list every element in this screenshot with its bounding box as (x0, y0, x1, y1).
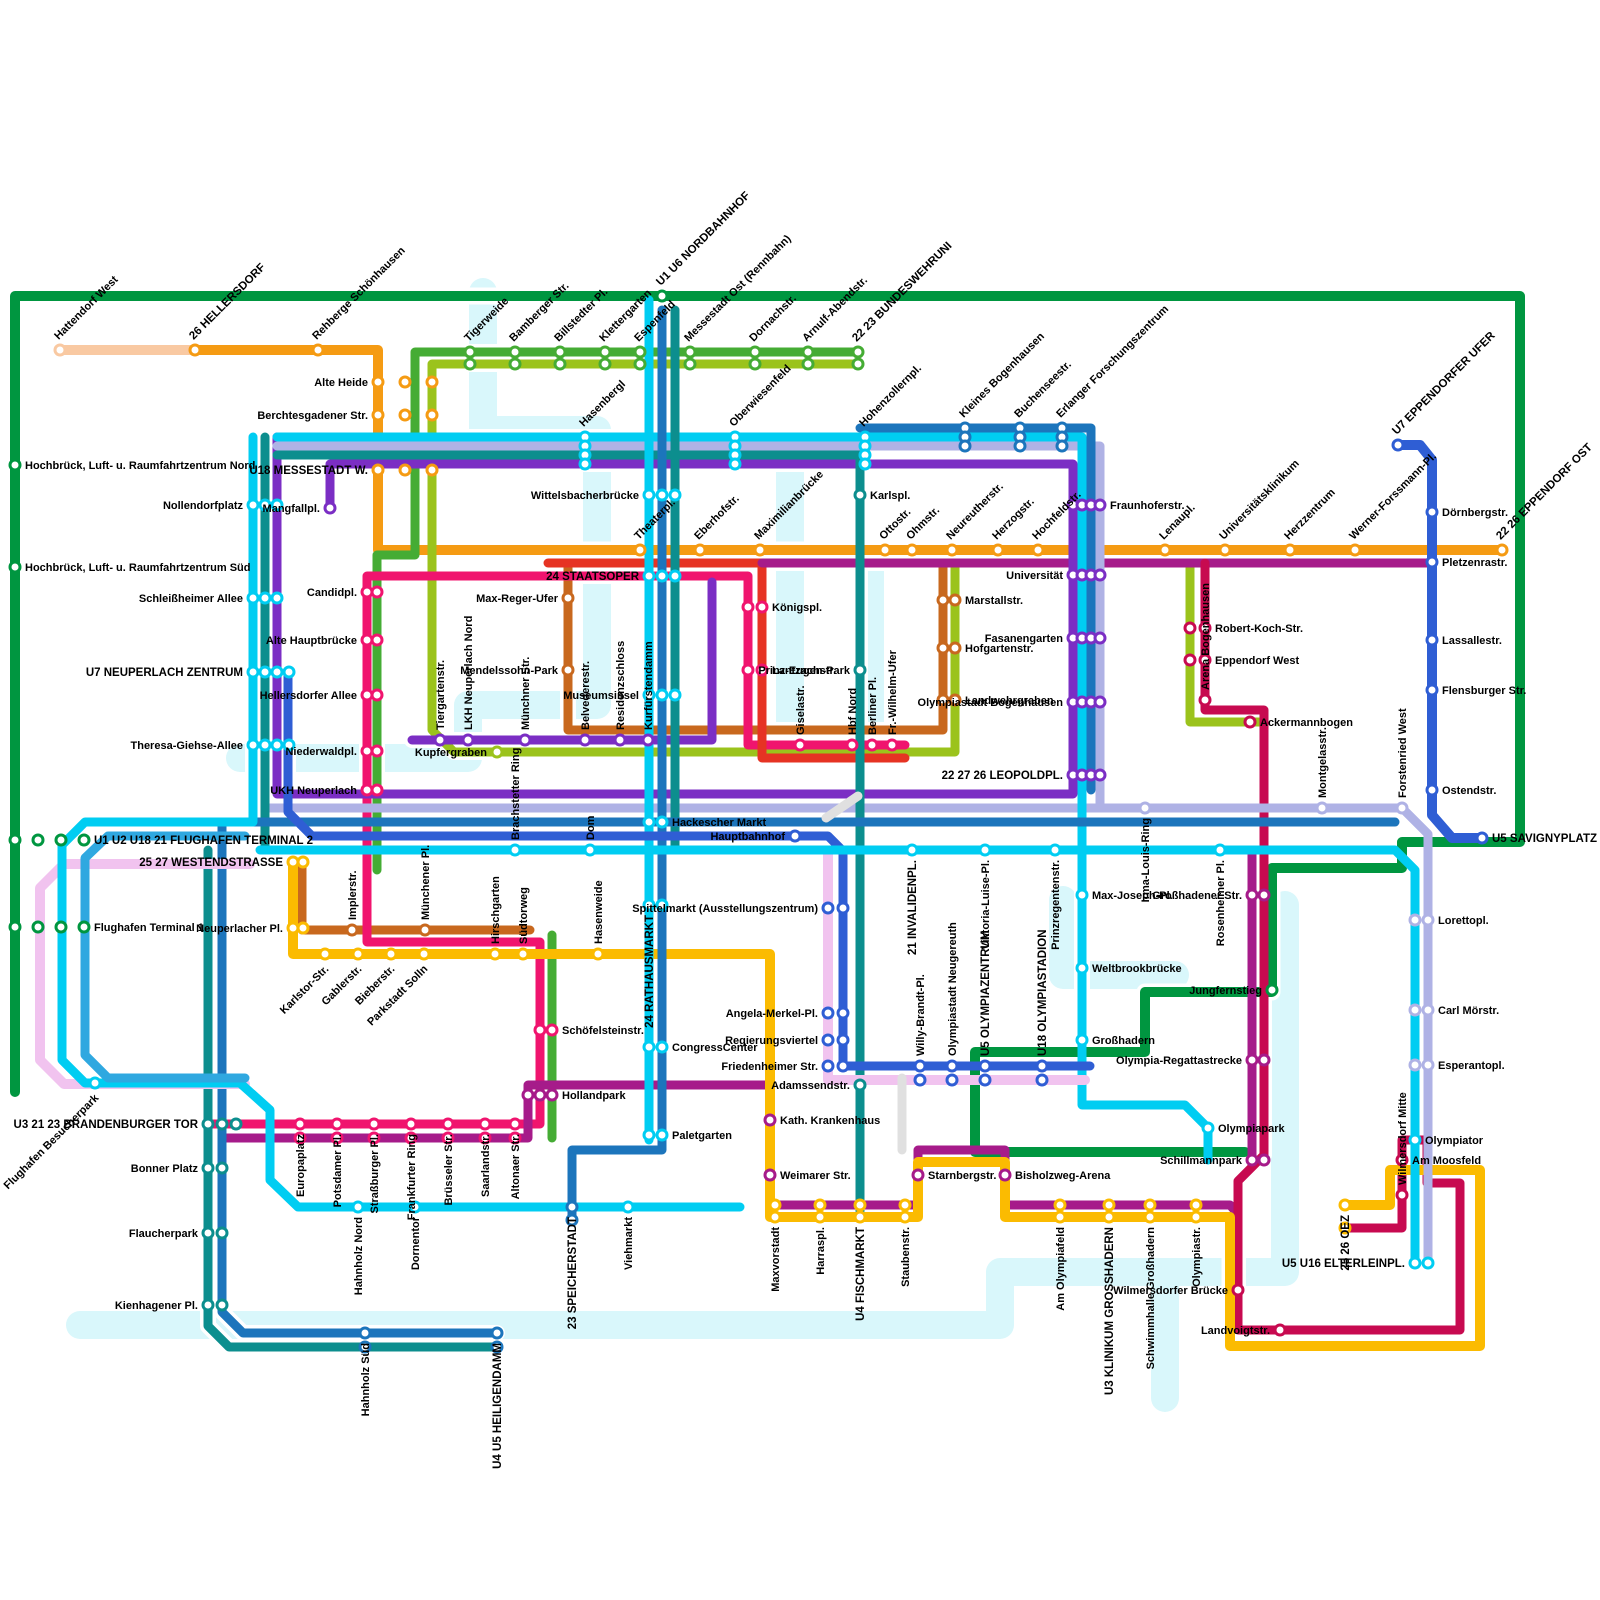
station-label: Kath. Krankenhaus (780, 1115, 880, 1127)
station-dot[interactable] (435, 735, 445, 745)
station-label: Landvoigtstr. (1201, 1325, 1270, 1337)
station-dot[interactable] (1397, 803, 1407, 813)
station-dot[interactable] (1055, 1212, 1065, 1222)
station-dot[interactable] (765, 1115, 775, 1125)
station-dot[interactable] (347, 925, 357, 935)
station-dot[interactable] (644, 490, 654, 500)
station-label: Paletgarten (672, 1130, 732, 1142)
station-dot[interactable] (1275, 1325, 1285, 1335)
station-label: Viehmarkt (623, 1217, 635, 1270)
station-dot[interactable] (248, 500, 258, 510)
station-dot[interactable] (593, 949, 603, 959)
station-label: Hattendorf West (52, 274, 121, 343)
station-dot[interactable] (427, 377, 437, 387)
station-dot[interactable] (838, 1035, 848, 1045)
station-label: Hochbrück, Luft- u. Raumfahrtzentrum Nor… (25, 460, 255, 472)
station-label: Angela-Merkel-Pl. (726, 1008, 818, 1020)
station-dot[interactable] (360, 1328, 370, 1338)
station-dot[interactable] (1095, 570, 1105, 580)
station-label: Hahnholz Nord (353, 1217, 365, 1295)
station-dot[interactable] (480, 1119, 490, 1129)
station-label: Brachstetter Ring (510, 748, 522, 840)
station-dot[interactable] (900, 1200, 910, 1210)
station-dot[interactable] (960, 441, 970, 451)
station-label: Maxvorstadt (770, 1227, 782, 1292)
station-dot[interactable] (853, 359, 863, 369)
station-dot[interactable] (386, 949, 396, 959)
station-label: Rosenheimer Pl. (1215, 860, 1227, 946)
station-label: Viktoria-Luise-Pl. (980, 860, 992, 950)
station-dot[interactable] (823, 1035, 833, 1045)
station-dot[interactable] (1185, 623, 1195, 633)
station-dot[interactable] (730, 459, 740, 469)
station-dot[interactable] (765, 1170, 775, 1180)
station-label: Dornentor (410, 1216, 422, 1270)
station-dot[interactable] (490, 949, 500, 959)
station-dot[interactable] (248, 740, 258, 750)
station-dot[interactable] (585, 845, 595, 855)
station-label-interchange: U1 U6 NORDBAHNHOF (654, 190, 752, 288)
station-label: Fraunhoferstr. (1110, 500, 1185, 512)
station-dot[interactable] (657, 690, 667, 700)
station-dot[interactable] (657, 490, 667, 500)
station-label: Starnbergstr. (928, 1170, 996, 1182)
station-dot[interactable] (1140, 803, 1150, 813)
station-dot[interactable] (880, 545, 890, 555)
station-label: Herzogstr. (990, 496, 1037, 543)
station-dot[interactable] (56, 835, 66, 845)
station-dot[interactable] (90, 1078, 100, 1088)
station-dot[interactable] (635, 359, 645, 369)
station-dot[interactable] (535, 1090, 545, 1100)
station-dot[interactable] (855, 1200, 865, 1210)
station-dot[interactable] (373, 465, 383, 475)
station-dot[interactable] (600, 347, 610, 357)
station-dot[interactable] (56, 922, 66, 932)
station-dot[interactable] (838, 1061, 848, 1071)
station-dot[interactable] (1427, 557, 1437, 567)
station-label: Weltbrookbrücke (1092, 963, 1182, 975)
station-dot[interactable] (1477, 833, 1487, 843)
station-label-interchange: U7 NEUPERLACH ZENTRUM (86, 667, 243, 679)
station-dot[interactable] (750, 359, 760, 369)
station-dot[interactable] (823, 1061, 833, 1071)
station-dot[interactable] (231, 1119, 241, 1129)
station-label: Mangfallpl. (263, 503, 320, 515)
station-label: Karlstor-Str. (278, 963, 331, 1016)
station-dot[interactable] (900, 1212, 910, 1222)
station-dot[interactable] (295, 1119, 305, 1129)
station-dot[interactable] (33, 835, 43, 845)
station-dot[interactable] (1393, 440, 1403, 450)
transit-map-page: Hattendorf West26 HELLERSDORFRehberge Sc… (0, 0, 1600, 1600)
station-dot[interactable] (1245, 717, 1255, 727)
station-dot[interactable] (332, 1119, 342, 1129)
station-dot[interactable] (260, 667, 270, 677)
station-dot[interactable] (1317, 803, 1327, 813)
station-dot[interactable] (55, 345, 65, 355)
station-dot[interactable] (1095, 500, 1105, 510)
station-dot[interactable] (1000, 1170, 1010, 1180)
station-dot[interactable] (33, 922, 43, 932)
station-dot[interactable] (419, 949, 429, 959)
station-dot[interactable] (523, 1090, 533, 1100)
station-dot[interactable] (353, 949, 363, 959)
station-label: Fasanengarten (985, 633, 1064, 645)
station-dot[interactable] (635, 347, 645, 357)
station-dot[interactable] (563, 665, 573, 675)
station-dot[interactable] (272, 740, 282, 750)
station-dot[interactable] (938, 595, 948, 605)
station-dot[interactable] (463, 735, 473, 745)
station-dot[interactable] (867, 740, 877, 750)
station-dot[interactable] (1427, 507, 1437, 517)
station-dot[interactable] (823, 903, 833, 913)
station-dot[interactable] (248, 593, 258, 603)
station-dot[interactable] (1497, 545, 1507, 555)
station-dot[interactable] (644, 1130, 654, 1140)
station-dot[interactable] (750, 347, 760, 357)
station-dot[interactable] (838, 1008, 848, 1018)
station-label: Pletzenrastr. (1442, 557, 1507, 569)
station-dot[interactable] (887, 740, 897, 750)
station-dot[interactable] (400, 410, 410, 420)
station-dot[interactable] (547, 1025, 557, 1035)
station-label: Potsdamer Pl. (332, 1134, 344, 1207)
station-dot[interactable] (10, 562, 20, 572)
station-dot[interactable] (427, 410, 437, 420)
station-dot[interactable] (1057, 441, 1067, 451)
station-dot[interactable] (372, 587, 382, 597)
station-dot[interactable] (520, 735, 530, 745)
station-dot[interactable] (10, 835, 20, 845)
station-dot[interactable] (260, 740, 270, 750)
station-dot[interactable] (1247, 1055, 1257, 1065)
station-dot[interactable] (555, 359, 565, 369)
station-dot[interactable] (803, 347, 813, 357)
station-dot[interactable] (913, 1170, 923, 1180)
station-dot[interactable] (635, 545, 645, 555)
station-dot[interactable] (492, 747, 502, 757)
station-dot[interactable] (1104, 1212, 1114, 1222)
station-dot[interactable] (217, 1300, 227, 1310)
station-dot[interactable] (1077, 890, 1087, 900)
station-dot[interactable] (1410, 1258, 1420, 1268)
station-dot[interactable] (950, 643, 960, 653)
station-dot[interactable] (492, 1328, 502, 1338)
station-dot[interactable] (1145, 1200, 1155, 1210)
station-dot[interactable] (217, 1163, 227, 1173)
station-dot[interactable] (1423, 1258, 1433, 1268)
station-label: Herzzentrum (1282, 486, 1338, 542)
station-dot[interactable] (644, 1042, 654, 1052)
station-label-interchange: U18 MESSESTADT W. (249, 465, 368, 477)
station-dot[interactable] (535, 1025, 545, 1035)
station-dot[interactable] (855, 665, 865, 675)
station-dot[interactable] (938, 643, 948, 653)
station-dot[interactable] (980, 1061, 990, 1071)
station-dot[interactable] (838, 903, 848, 913)
station-dot[interactable] (815, 1200, 825, 1210)
station-dot[interactable] (623, 1202, 633, 1212)
station-dot[interactable] (1200, 695, 1210, 705)
station-label: Alte Heide (314, 377, 368, 389)
station-dot[interactable] (1397, 1190, 1407, 1200)
station-label: Neuperlacher Pl. (196, 923, 283, 935)
station-dot[interactable] (790, 831, 800, 841)
station-dot[interactable] (443, 1119, 453, 1129)
station-dot[interactable] (743, 665, 753, 675)
station-dot[interactable] (795, 740, 805, 750)
station-dot[interactable] (643, 735, 653, 745)
station-dot[interactable] (298, 923, 308, 933)
station-dot[interactable] (1033, 545, 1043, 555)
station-dot[interactable] (1350, 545, 1360, 555)
station-dot[interactable] (1104, 1200, 1114, 1210)
station-label: Forstenried West (1397, 708, 1409, 798)
station-dot[interactable] (427, 465, 437, 475)
station-dot[interactable] (1285, 545, 1295, 555)
station-dot[interactable] (260, 593, 270, 603)
station-label: Frankfurter Ring (406, 1134, 418, 1220)
station-dot[interactable] (915, 1075, 925, 1085)
station-dot[interactable] (657, 571, 667, 581)
station-dot[interactable] (1410, 1005, 1420, 1015)
station-dot[interactable] (803, 359, 813, 369)
station-label: Südtorweg (518, 887, 530, 944)
station-dot[interactable] (203, 1119, 213, 1129)
station-label-interchange: U5 U16 ELTERLEINPL. (1282, 1258, 1405, 1270)
station-dot[interactable] (1259, 890, 1269, 900)
station-label: Olympiastadt Bogenhausen (918, 697, 1064, 709)
station-dot[interactable] (1015, 441, 1025, 451)
station-dot[interactable] (372, 690, 382, 700)
station-dot[interactable] (644, 571, 654, 581)
station-label: Jungfernstieg (1189, 985, 1262, 997)
station-dot[interactable] (373, 410, 383, 420)
station-dot[interactable] (670, 490, 680, 500)
station-dot[interactable] (1259, 1155, 1269, 1165)
station-dot[interactable] (400, 377, 410, 387)
station-label-interchange: 22 26 EPPENDORF OST (1494, 442, 1595, 543)
station-dot[interactable] (743, 602, 753, 612)
station-dot[interactable] (1410, 915, 1420, 925)
station-dot[interactable] (1427, 635, 1437, 645)
station-dot[interactable] (1427, 785, 1437, 795)
station-dot[interactable] (1095, 633, 1105, 643)
station-label: Regierungsviertel (725, 1035, 818, 1047)
station-dot[interactable] (1410, 1060, 1420, 1070)
station-dot[interactable] (770, 1200, 780, 1210)
station-label: Hackescher Markt (672, 817, 767, 829)
station-dot[interactable] (1233, 1285, 1243, 1295)
station-dot[interactable] (10, 922, 20, 932)
station-dot[interactable] (1077, 963, 1087, 973)
station-label: Am Moosfeld (1412, 1155, 1481, 1167)
station-dot[interactable] (1423, 1005, 1433, 1015)
station-dot[interactable] (757, 602, 767, 612)
station-dot[interactable] (320, 949, 330, 959)
station-label: Parkstadt Solln (365, 963, 430, 1028)
station-dot[interactable] (657, 291, 667, 301)
station-dot[interactable] (563, 593, 573, 603)
station-dot[interactable] (847, 740, 857, 750)
station-dot[interactable] (855, 1080, 865, 1090)
station-label: Ostendstr. (1442, 785, 1496, 797)
station-dot[interactable] (1427, 685, 1437, 695)
station-dot[interactable] (372, 746, 382, 756)
station-label: Carl Mörstr. (1438, 1005, 1499, 1017)
station-dot[interactable] (1259, 1055, 1269, 1065)
station-label: Europaplatz (295, 1134, 307, 1197)
station-dot[interactable] (10, 460, 20, 470)
station-dot[interactable] (325, 503, 335, 513)
station-dot[interactable] (79, 835, 89, 845)
station-label: Flaucherpark (129, 1228, 199, 1240)
station-dot[interactable] (1185, 655, 1195, 665)
station-label: Olympiastr. (1191, 1227, 1203, 1287)
station-dot[interactable] (950, 595, 960, 605)
station-dot[interactable] (217, 1228, 227, 1238)
station-dot[interactable] (1203, 1123, 1213, 1133)
station-label: Olympia-Regattastrecke (1116, 1055, 1242, 1067)
station-dot[interactable] (907, 545, 917, 555)
station-dot[interactable] (993, 545, 1003, 555)
station-dot[interactable] (580, 735, 590, 745)
station-dot[interactable] (615, 735, 625, 745)
station-dot[interactable] (420, 925, 430, 935)
station-dot[interactable] (406, 1119, 416, 1129)
station-dot[interactable] (1077, 1035, 1087, 1045)
station-dot[interactable] (248, 667, 258, 677)
station-dot[interactable] (547, 1090, 557, 1100)
station-dot[interactable] (685, 359, 695, 369)
station-label: Marstallstr. (965, 595, 1023, 607)
station-dot[interactable] (510, 845, 520, 855)
station-dot[interactable] (855, 1212, 865, 1222)
station-dot[interactable] (203, 1163, 213, 1173)
station-dot[interactable] (1410, 1135, 1420, 1145)
station-dot[interactable] (1247, 890, 1257, 900)
station-dot[interactable] (947, 1075, 957, 1085)
station-dot[interactable] (907, 845, 917, 855)
station-dot[interactable] (1095, 697, 1105, 707)
station-dot[interactable] (670, 571, 680, 581)
station-label: Olympiapark (1218, 1123, 1286, 1135)
station-dot[interactable] (190, 345, 200, 355)
station-label: Weimarer Str. (780, 1170, 851, 1182)
station-dot[interactable] (980, 1075, 990, 1085)
station-dot[interactable] (1215, 845, 1225, 855)
station-label: Altonaer Str. (510, 1134, 522, 1199)
station-dot[interactable] (1191, 1200, 1201, 1210)
station-dot[interactable] (657, 1042, 667, 1052)
station-label: Montgelasstr. (1317, 727, 1329, 798)
station-dot[interactable] (1220, 545, 1230, 555)
station-label: Niederwaldpl. (285, 746, 357, 758)
station-dot[interactable] (369, 1119, 379, 1129)
station-dot[interactable] (518, 949, 528, 959)
station-dot[interactable] (372, 635, 382, 645)
station-dot[interactable] (580, 459, 590, 469)
station-dot[interactable] (657, 1130, 667, 1140)
station-dot[interactable] (860, 459, 870, 469)
station-dot[interactable] (284, 667, 294, 677)
station-dot[interactable] (1423, 1060, 1433, 1070)
station-dot[interactable] (695, 545, 705, 555)
station-dot[interactable] (1095, 770, 1105, 780)
station-dot[interactable] (465, 359, 475, 369)
station-dot[interactable] (203, 1228, 213, 1238)
station-dot[interactable] (815, 1212, 825, 1222)
station-dot[interactable] (644, 817, 654, 827)
station-dot[interactable] (373, 377, 383, 387)
station-dot[interactable] (600, 359, 610, 369)
station-dot[interactable] (853, 347, 863, 357)
station-dot[interactable] (313, 345, 323, 355)
station-dot[interactable] (510, 1119, 520, 1129)
station-dot[interactable] (272, 667, 282, 677)
station-dot[interactable] (770, 1212, 780, 1222)
station-dot[interactable] (372, 785, 382, 795)
station-dot[interactable] (657, 817, 667, 827)
station-dot[interactable] (400, 465, 410, 475)
station-label: Alte Hauptbrücke (266, 635, 357, 647)
station-dot[interactable] (915, 1061, 925, 1071)
station-dot[interactable] (670, 690, 680, 700)
station-dot[interactable] (555, 347, 565, 357)
station-label: Flensburger Str. (1442, 685, 1526, 697)
station-dot[interactable] (1340, 1200, 1350, 1210)
station-dot[interactable] (567, 1202, 577, 1212)
station-dot[interactable] (510, 359, 520, 369)
station-dot[interactable] (947, 1061, 957, 1071)
station-dot[interactable] (510, 347, 520, 357)
station-dot[interactable] (685, 347, 695, 357)
station-dot[interactable] (1037, 1075, 1047, 1085)
station-dot[interactable] (298, 857, 308, 867)
station-dot[interactable] (217, 1119, 227, 1129)
station-dot[interactable] (1160, 545, 1170, 555)
station-label-interchange: U3 21 23 BRANDENBURGER TOR (14, 1119, 199, 1131)
station-dot[interactable] (1191, 1212, 1201, 1222)
station-dot[interactable] (947, 545, 957, 555)
station-dot[interactable] (465, 347, 475, 357)
station-dot[interactable] (855, 490, 865, 500)
station-label: Dörnbergstr. (1442, 507, 1508, 519)
station-label: Münchener Pl. (420, 845, 432, 920)
station-dot[interactable] (203, 1300, 213, 1310)
station-dot[interactable] (823, 1008, 833, 1018)
station-dot[interactable] (1267, 985, 1277, 995)
station-label: Willy-Brandt-Pl. (915, 974, 927, 1056)
station-label: Hellersdorfer Allee (260, 690, 357, 702)
station-dot[interactable] (980, 845, 990, 855)
station-dot[interactable] (1055, 1200, 1065, 1210)
station-dot[interactable] (1037, 1061, 1047, 1071)
station-dot[interactable] (1145, 1212, 1155, 1222)
station-dot[interactable] (79, 922, 89, 932)
station-dot[interactable] (272, 593, 282, 603)
station-dot[interactable] (1423, 915, 1433, 925)
station-label: Spittelmarkt (Ausstellungszentrum) (632, 903, 818, 915)
station-dot[interactable] (1247, 1155, 1257, 1165)
station-label: Hochbrück, Luft- u. Raumfahrtzentrum Süd (25, 562, 251, 574)
station-label: Flughafen Besucherpark (2, 1092, 102, 1192)
station-dot[interactable] (353, 1202, 363, 1212)
station-dot[interactable] (755, 545, 765, 555)
station-dot[interactable] (1050, 845, 1060, 855)
